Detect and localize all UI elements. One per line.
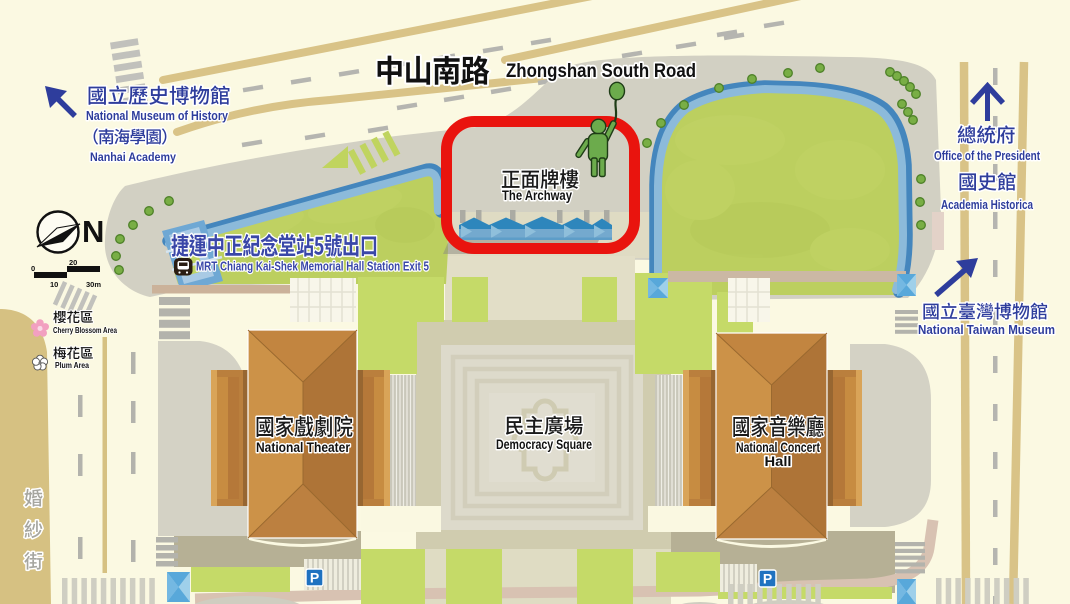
svg-text:Hall: Hall — [765, 454, 792, 469]
svg-text:Zhongshan South Road: Zhongshan South Road — [506, 60, 696, 82]
svg-text:National Museum of History: National Museum of History — [86, 108, 229, 123]
svg-text:0: 0 — [31, 264, 35, 273]
svg-text:Academia Historica: Academia Historica — [941, 198, 1034, 212]
svg-text:MRT Chiang Kai-Shek Memorial H: MRT Chiang Kai-Shek Memorial Hall Statio… — [196, 259, 429, 274]
svg-text:20: 20 — [69, 258, 77, 267]
svg-text:10: 10 — [50, 280, 58, 289]
svg-text:Office of the President: Office of the President — [934, 149, 1041, 163]
svg-text:Cherry Blossom Area: Cherry Blossom Area — [53, 326, 117, 335]
svg-text:National Taiwan Museum: National Taiwan Museum — [918, 322, 1055, 337]
svg-text:30m: 30m — [86, 280, 101, 289]
svg-text:Nanhai Academy: Nanhai Academy — [90, 152, 177, 164]
svg-text:Plum Area: Plum Area — [55, 361, 89, 370]
svg-text:National Theater: National Theater — [256, 440, 351, 455]
svg-text:N: N — [82, 214, 104, 249]
svg-text:Democracy Square: Democracy Square — [496, 437, 592, 452]
svg-text:P: P — [310, 570, 319, 586]
svg-text:National Concert: National Concert — [736, 440, 820, 455]
svg-text:P: P — [763, 571, 772, 587]
